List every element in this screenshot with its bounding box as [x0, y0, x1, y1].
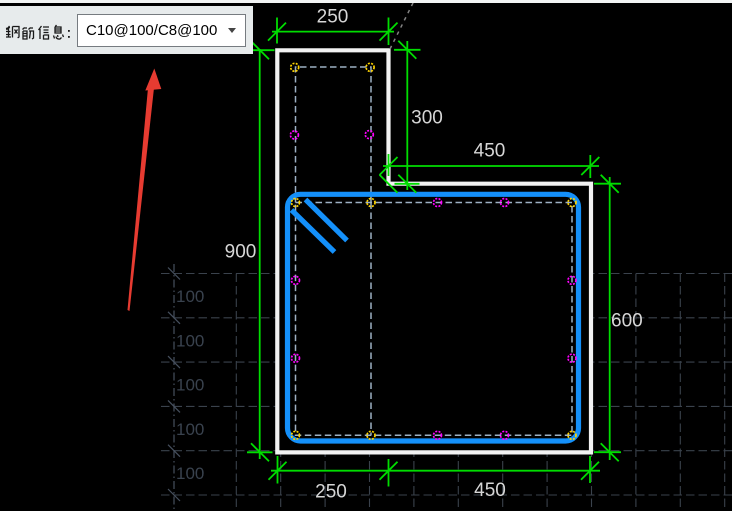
- svg-text:300: 300: [411, 107, 443, 128]
- svg-text:100: 100: [176, 376, 204, 395]
- svg-text:250: 250: [317, 6, 349, 27]
- svg-text:250: 250: [315, 481, 347, 502]
- svg-text:450: 450: [474, 140, 506, 161]
- svg-text:450: 450: [474, 480, 506, 501]
- svg-text:100: 100: [176, 287, 204, 306]
- svg-text:100: 100: [176, 331, 204, 350]
- svg-text:600: 600: [611, 310, 643, 331]
- svg-text:900: 900: [225, 241, 257, 262]
- svg-text:100: 100: [176, 420, 204, 439]
- svg-text:100: 100: [176, 464, 204, 483]
